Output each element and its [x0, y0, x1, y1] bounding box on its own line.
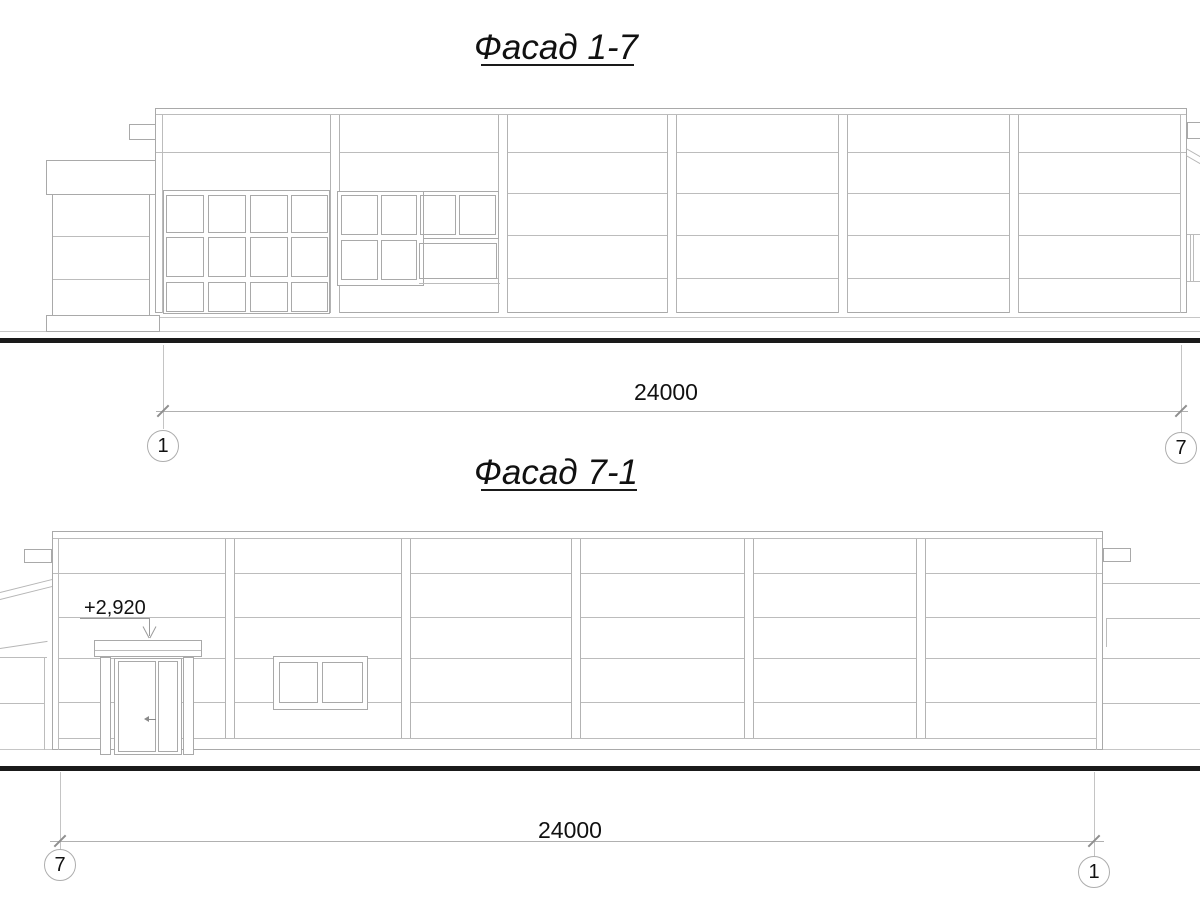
axis-label: 7: [1175, 437, 1186, 460]
pavement-line: [0, 331, 1200, 332]
facade-7-1-title: Фасад 7-1: [416, 453, 696, 493]
annex-edge-line: [1193, 234, 1194, 282]
elevation-drawing-sheet: Фасад 1-7: [0, 0, 1200, 900]
window: [420, 195, 456, 235]
window: [381, 195, 417, 235]
roof-stub: [1103, 548, 1131, 562]
pilaster: [401, 539, 411, 738]
dimension-value: 24000: [520, 817, 620, 844]
roof-stub: [1187, 122, 1200, 139]
wall-inner-edge-left: [58, 538, 59, 750]
window: [250, 195, 288, 233]
annex-panel-line: [1103, 703, 1200, 704]
axis-bubble-1: 1: [147, 430, 179, 462]
extension-line: [163, 345, 164, 429]
annex-edge-line: [1190, 234, 1191, 282]
window: [208, 237, 246, 277]
window: [166, 282, 204, 312]
dimension-value: 24000: [616, 379, 716, 406]
roof-stub: [129, 124, 156, 140]
axis-bubble-7: 7: [44, 849, 76, 881]
axis-label: 1: [157, 435, 168, 458]
window: [250, 282, 288, 312]
window: [291, 195, 328, 233]
door-leaf: [118, 661, 156, 752]
window: [250, 237, 288, 277]
pilaster: [838, 115, 848, 313]
axis-bubble-1: 1: [1078, 856, 1110, 888]
pilaster: [571, 539, 581, 738]
annex-wall: [52, 194, 150, 316]
annex-plinth: [46, 315, 160, 332]
extension-line: [1094, 772, 1095, 857]
facade-1-7-title: Фасад 1-7: [416, 28, 696, 68]
elevation-arrow-shaft: [149, 618, 150, 636]
wall-inner-edge-right: [1180, 114, 1181, 313]
facade-1-7-title-underline: [481, 64, 634, 66]
plinth-top-line: [160, 317, 1200, 318]
annex-panel-line: [53, 236, 149, 237]
entrance-canopy: [94, 640, 202, 657]
canopy-post: [183, 657, 194, 755]
window: [208, 282, 246, 312]
step-line: [419, 283, 500, 284]
extension-line: [1181, 345, 1182, 433]
axis-bubble-7: 7: [1165, 432, 1197, 464]
pilaster: [225, 539, 235, 738]
sloped-roof-line: [0, 586, 53, 600]
window: [279, 662, 318, 703]
annex-edge-line: [44, 657, 45, 750]
pilaster: [1009, 115, 1019, 313]
axis-label: 7: [54, 854, 65, 877]
window: [166, 195, 204, 233]
window: [459, 195, 496, 235]
sloped-roof-line: [0, 579, 53, 593]
wall-panel: [419, 243, 497, 279]
pilaster: [744, 539, 754, 738]
annex-edge-line: [1187, 234, 1200, 235]
annex-top-line: [0, 657, 47, 658]
annex-edge-line: [1106, 618, 1107, 647]
elevation-mark-value: +2,920: [84, 597, 146, 620]
wall-base-line: [59, 738, 1096, 739]
window: [208, 195, 246, 233]
window: [166, 237, 204, 277]
annex-panel-line: [53, 279, 149, 280]
canopy-inner-line: [95, 650, 201, 651]
roof-stub: [24, 549, 52, 563]
door-swing-arrowhead: [144, 716, 149, 722]
door-leaf: [158, 661, 178, 752]
pilaster: [916, 539, 926, 738]
canopy-post: [100, 657, 111, 755]
window: [341, 240, 378, 280]
dimension-line: [156, 411, 1188, 412]
annex-edge-line: [1187, 281, 1200, 282]
elevation-leader-line: [80, 618, 150, 619]
pilaster: [667, 115, 677, 313]
wall-inner-edge-right: [1096, 538, 1097, 750]
window: [291, 237, 328, 277]
window: [322, 662, 363, 703]
window: [341, 195, 378, 235]
annex-panel-line: [1103, 658, 1200, 659]
annex-top-line: [1103, 583, 1200, 584]
facade-7-1-title-underline: [481, 489, 637, 491]
ground-line: [0, 338, 1200, 343]
axis-label: 1: [1088, 861, 1099, 884]
annex-fascia-band: [46, 160, 156, 195]
ground-line: [0, 766, 1200, 771]
annex-panel-line: [1106, 618, 1200, 619]
sloped-roof-line: [0, 641, 48, 649]
window: [381, 240, 417, 280]
annex-panel-line: [0, 703, 44, 704]
window: [291, 282, 328, 312]
